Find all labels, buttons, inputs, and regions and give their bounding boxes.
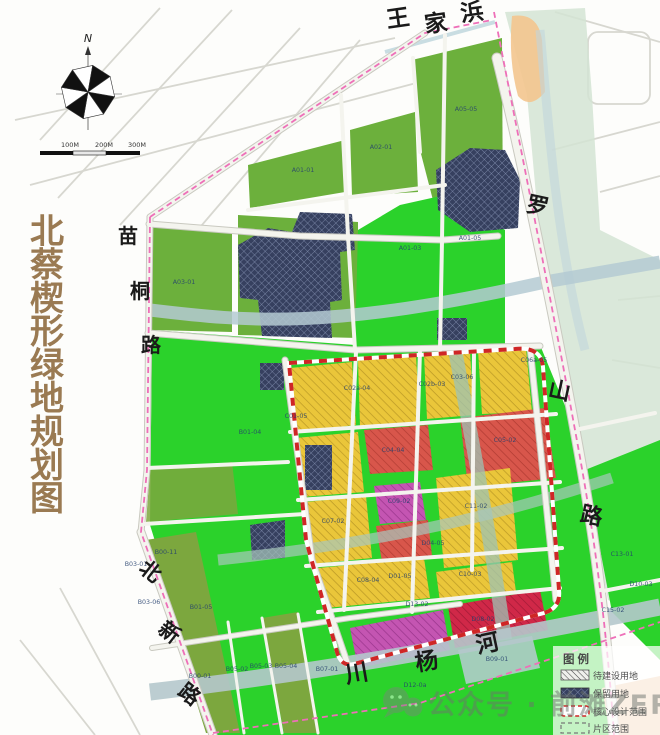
road-label-wangjiabang: 王 bbox=[385, 5, 411, 34]
parcel-code-label: A05-05 bbox=[455, 106, 478, 113]
parcel-code-label: C04-04 bbox=[382, 447, 405, 454]
parcel-code-label: C05-02 bbox=[494, 437, 517, 444]
legend-header: 图例 bbox=[563, 652, 592, 666]
parcel-code-label: D10-03 bbox=[629, 581, 652, 588]
page-title: 北蔡楔形绿地规划图 bbox=[29, 212, 65, 519]
parcel-code-label: C08-04 bbox=[357, 577, 380, 584]
road-label-miaotong-road: 苗 bbox=[118, 224, 138, 248]
pending-land-swatch bbox=[561, 670, 589, 680]
parcel-code-label: C06a-05 bbox=[521, 357, 548, 364]
road-label-miaotong-road: 桐 bbox=[130, 279, 150, 303]
parcel-code-label: C11-02 bbox=[465, 503, 488, 510]
parcel-code-label: A01-01 bbox=[292, 167, 315, 174]
parcel-code-label: B00-11 bbox=[155, 549, 178, 556]
map-canvas: A03-01A01-01A02-01A05-05A01-03A01-05B01-… bbox=[0, 0, 660, 735]
parcel-code-label: C07-02 bbox=[322, 518, 345, 525]
parcel-code-label: C03-06 bbox=[451, 374, 474, 381]
parcel-code-label: C15-02 bbox=[602, 607, 625, 614]
parcel-code-label: D01-05 bbox=[388, 573, 411, 580]
road-label-wangjiabang: 浜 bbox=[459, 0, 485, 28]
scale-200m: 200M bbox=[95, 141, 113, 149]
parcel-code-label: A03-01 bbox=[173, 279, 196, 286]
parcel-code-label: C01-05 bbox=[285, 413, 308, 420]
parcel-code-label: B00-01 bbox=[189, 673, 212, 680]
parcel-code-label: C02b-03 bbox=[419, 381, 446, 388]
parcel-code-label: D13-02 bbox=[405, 601, 428, 608]
parcel-code-label: C09-02 bbox=[388, 498, 411, 505]
parcel-code-label: B05-04 bbox=[275, 663, 298, 670]
parcel-code-label: B05-02 bbox=[226, 666, 249, 673]
planning-map-page: A03-01A01-01A02-01A05-05A01-03A01-05B01-… bbox=[0, 0, 660, 735]
parcel-code-label: B05-03 bbox=[250, 663, 273, 670]
road-label-chuanyang-river: 川 bbox=[343, 659, 370, 689]
parcel-code-label: C10-03 bbox=[459, 571, 482, 578]
parcel-code-label: B01-04 bbox=[239, 429, 262, 436]
road-label-miaotong-road: 路 bbox=[141, 333, 162, 357]
scale-100m: 100M bbox=[61, 141, 79, 149]
road-label-chuanyang-river: 杨 bbox=[413, 646, 440, 677]
scale-300m: 300M bbox=[128, 141, 146, 149]
compass-n-label: N bbox=[84, 32, 92, 45]
parcel-code-label: A01-03 bbox=[399, 245, 422, 252]
parcel-code-label: A02-01 bbox=[370, 144, 393, 151]
parcel-code-label: D08-02 bbox=[471, 616, 494, 623]
parcel-code-label: B07-01 bbox=[316, 666, 339, 673]
parcel-code-label: D12-0a bbox=[404, 682, 427, 689]
svg-text:待建设用地: 待建设用地 bbox=[593, 670, 638, 682]
watermark-text: 公众号 · 前滩ZERO bbox=[428, 689, 660, 721]
parcel-code-label: C13-01 bbox=[611, 551, 634, 558]
parcel-code-label: B03-06 bbox=[138, 599, 161, 606]
svg-text:片区范围: 片区范围 bbox=[593, 723, 629, 735]
parcel-code-label: B01-05 bbox=[190, 604, 213, 611]
road-label-wangjiabang: 家 bbox=[423, 9, 450, 39]
page-title-char: 图 bbox=[30, 479, 64, 519]
legend-item-pending-land: 待建设用地 bbox=[561, 670, 638, 682]
parcel-code-label: A01-05 bbox=[459, 235, 482, 242]
parcel-code-label: C02a-04 bbox=[344, 385, 371, 392]
parcel-code-label: D04-05 bbox=[421, 540, 444, 547]
